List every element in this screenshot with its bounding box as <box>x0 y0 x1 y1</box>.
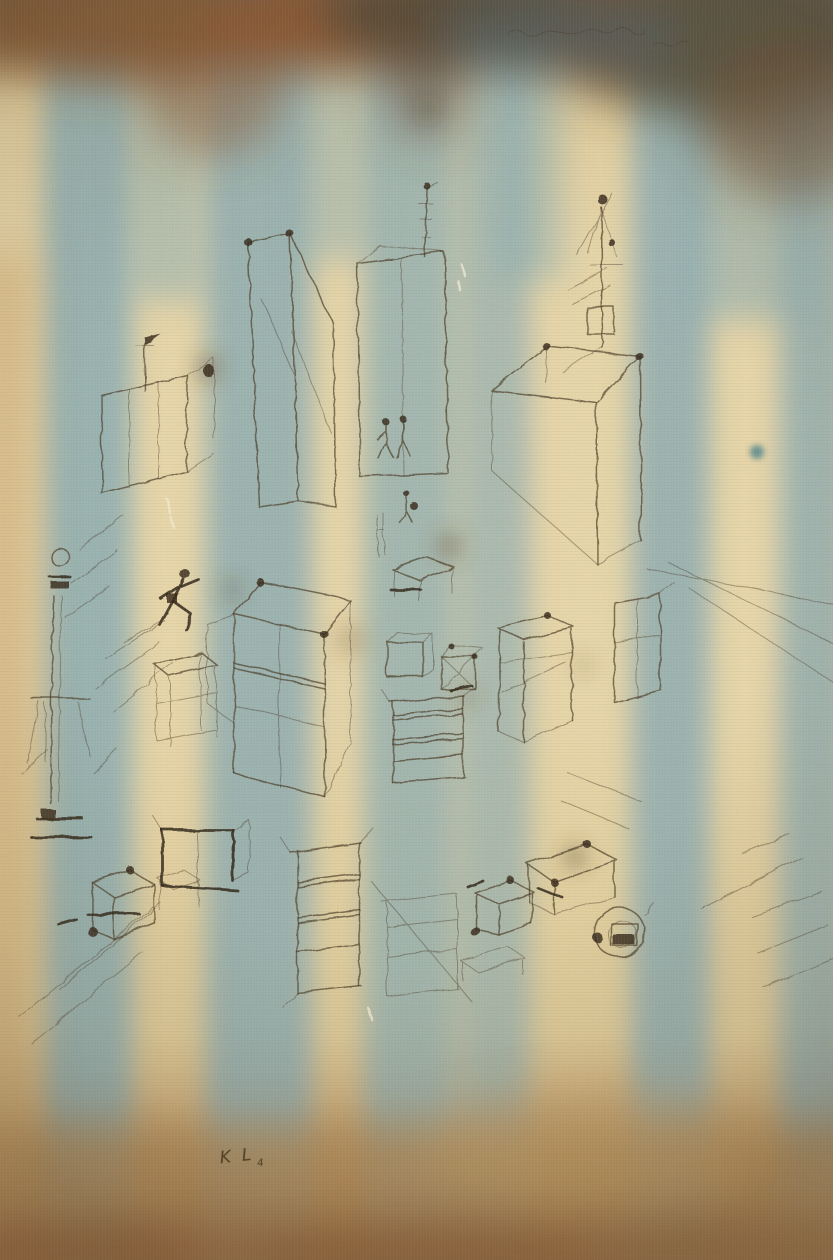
signature-mark: 4 <box>257 1158 264 1170</box>
painting-canvas: KL4 <box>0 0 833 1260</box>
paper-grain <box>0 0 833 1260</box>
signature-initials: KL <box>219 1144 263 1168</box>
artist-signature: KL4 <box>219 1144 264 1173</box>
watercolor-artwork <box>0 0 833 1260</box>
